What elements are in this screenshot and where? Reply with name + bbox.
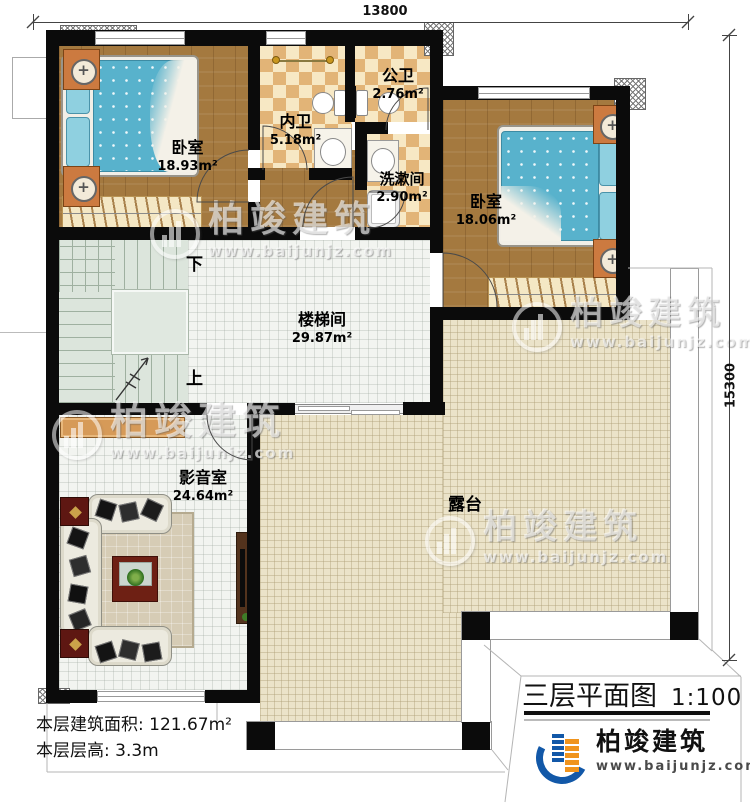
title-underline-thin (524, 719, 710, 721)
floor-height-text: 本层层高: 3.3m (36, 738, 232, 764)
brand-website: www.baijunjz.com (596, 759, 750, 774)
room-name: 卧室 (470, 192, 502, 211)
drawing-title: 三层平面图1:100 (522, 674, 732, 713)
room-area: 5.18m² (253, 133, 338, 150)
room-name: 影音室 (179, 468, 227, 487)
room-label-stairwell: 楼梯间 29.87m² (272, 310, 372, 348)
drawing-scale: 1:100 (671, 685, 742, 711)
room-area: 24.64m² (153, 489, 253, 506)
door-arcs (197, 88, 497, 460)
room-label-inner-bath: 内卫 5.18m² (253, 112, 338, 150)
room-area: 18.06m² (436, 213, 536, 230)
floor-plan-canvas: + + + + (0, 0, 750, 803)
brand-logo: 柏竣建筑 www.baijunjz.com (536, 728, 750, 786)
stair-down-label: 下 (186, 250, 203, 275)
room-name: 洗漱间 (379, 170, 424, 188)
room-area: 29.87m² (272, 331, 372, 348)
room-label-bedroom1: 卧室 18.93m² (135, 138, 240, 176)
room-name: 内卫 (279, 112, 311, 131)
room-label-bedroom2: 卧室 18.06m² (436, 192, 536, 230)
room-label-media-room: 影音室 24.64m² (153, 468, 253, 506)
dimension-label-top: 13800 (340, 4, 430, 19)
stair-direction-line (116, 358, 148, 400)
room-name: 公卫 (382, 66, 414, 85)
room-label-terrace: 露台 (425, 494, 505, 516)
dimension-label-right: 15300 (724, 356, 739, 416)
dimension-line-top (33, 22, 688, 23)
brand-logo-icon (536, 728, 588, 786)
room-area: 2.76m² (358, 87, 438, 104)
room-area: 18.93m² (135, 159, 240, 176)
dimension-tick (33, 14, 34, 30)
dimension-tick (688, 14, 689, 30)
dimension-tick (722, 35, 737, 36)
dimension-line-right (729, 35, 730, 660)
title-underline (524, 711, 710, 715)
room-name: 卧室 (171, 138, 203, 157)
room-name: 楼梯间 (298, 310, 346, 329)
room-label-public-bath: 公卫 2.76m² (358, 66, 438, 104)
dimension-ticks (27, 16, 735, 666)
stair-up-label: 上 (186, 364, 203, 389)
drawing-title-text: 三层平面图 (522, 681, 657, 712)
building-area-text: 本层建筑面积: 121.67m² (36, 712, 232, 738)
dimension-tick (722, 660, 737, 661)
brand-name: 柏竣建筑 (596, 728, 750, 756)
floor-info: 本层建筑面积: 121.67m² 本层层高: 3.3m (36, 712, 232, 765)
room-name: 露台 (448, 495, 482, 515)
